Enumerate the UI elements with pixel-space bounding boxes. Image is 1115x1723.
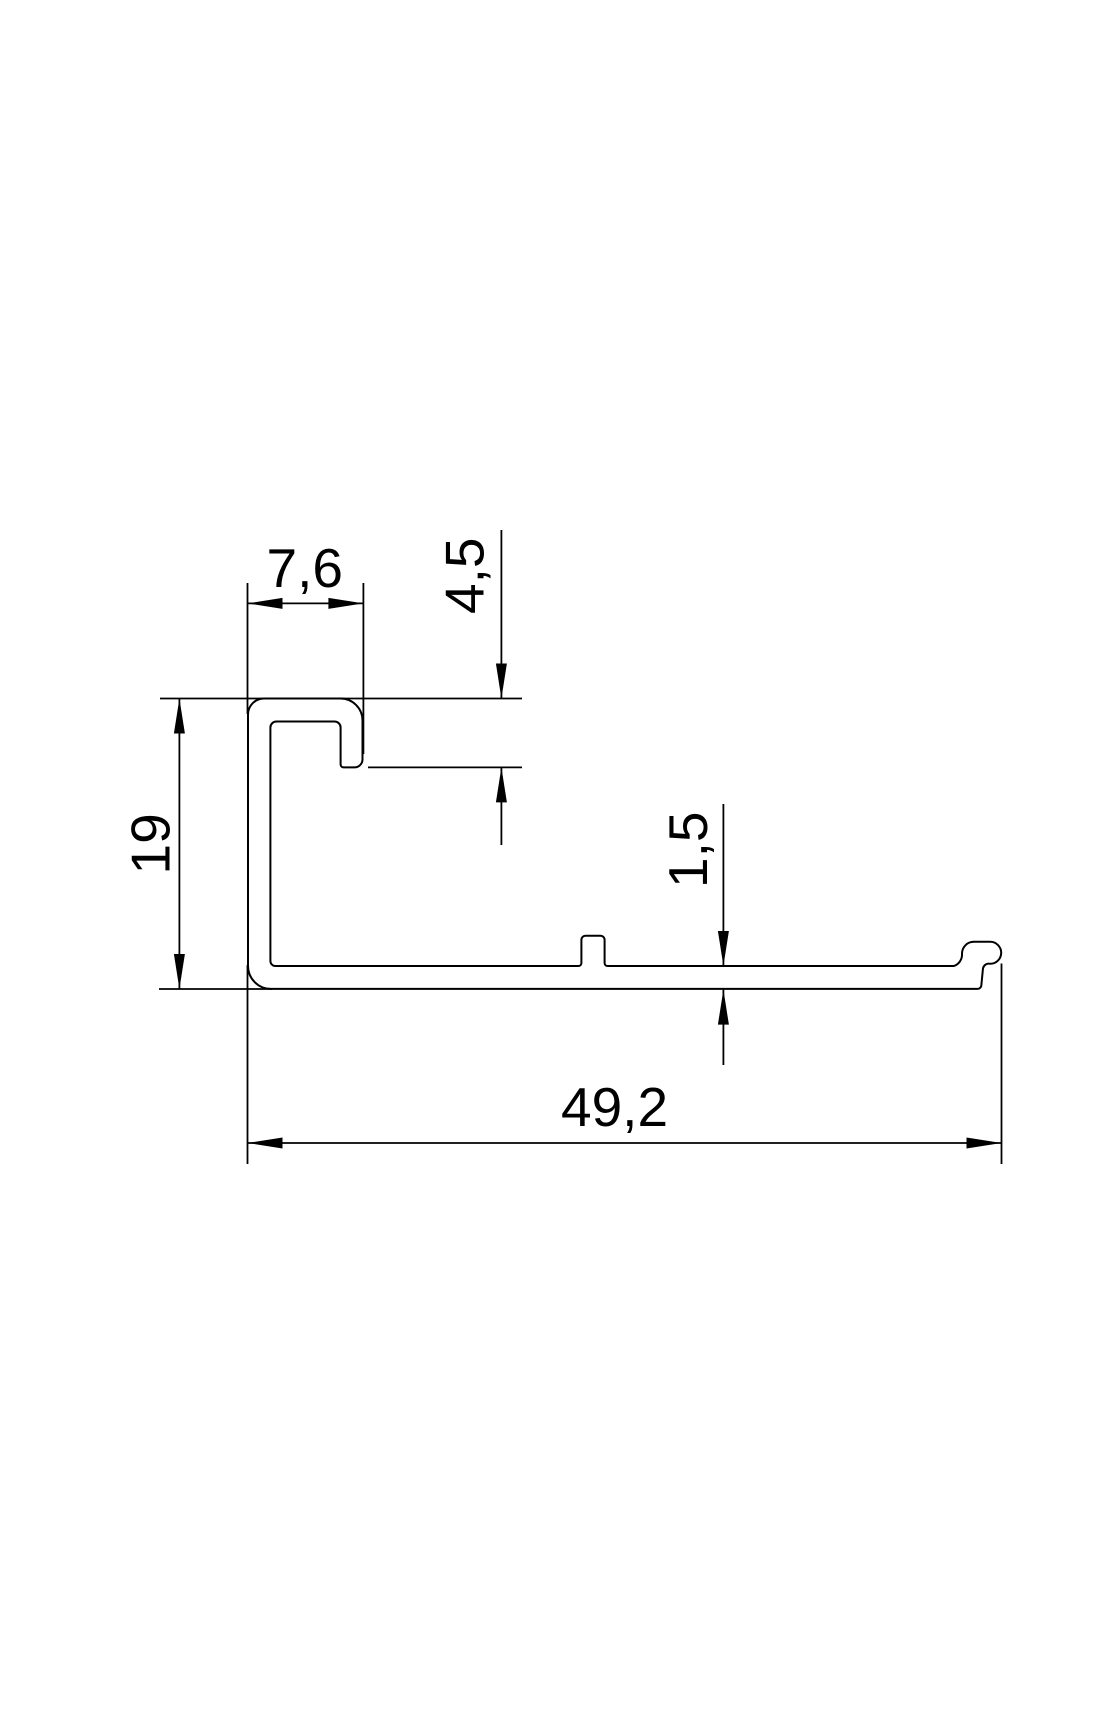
svg-text:1,5: 1,5 <box>657 812 719 888</box>
svg-text:7,6: 7,6 <box>267 537 343 599</box>
svg-text:49,2: 49,2 <box>561 1076 668 1138</box>
svg-text:19: 19 <box>120 813 182 874</box>
svg-text:4,5: 4,5 <box>434 538 496 614</box>
